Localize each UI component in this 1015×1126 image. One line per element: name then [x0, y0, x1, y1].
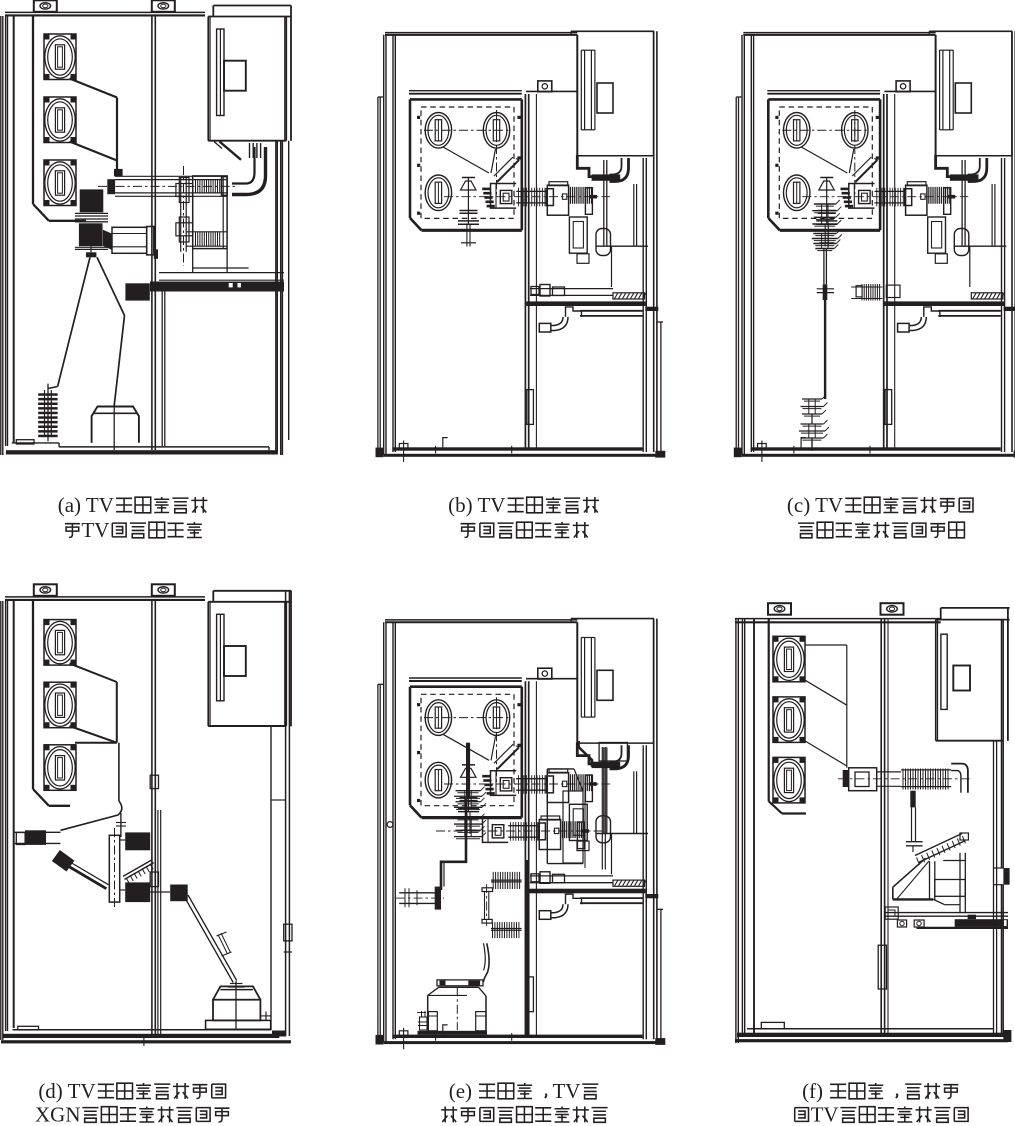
svg-text:TV: TV — [81, 518, 109, 542]
svg-text:(b) TV: (b) TV — [448, 493, 505, 517]
svg-text:(f): (f) — [802, 1079, 823, 1103]
svg-text:(e): (e) — [449, 1079, 472, 1103]
svg-text:(d) TV: (d) TV — [38, 1079, 95, 1103]
svg-text:TV: TV — [811, 1103, 839, 1126]
svg-text:(c) TV: (c) TV — [787, 493, 843, 517]
svg-text:XGN: XGN — [35, 1103, 81, 1126]
svg-text:(a) TV: (a) TV — [58, 493, 114, 517]
svg-text:TV: TV — [552, 1079, 580, 1103]
